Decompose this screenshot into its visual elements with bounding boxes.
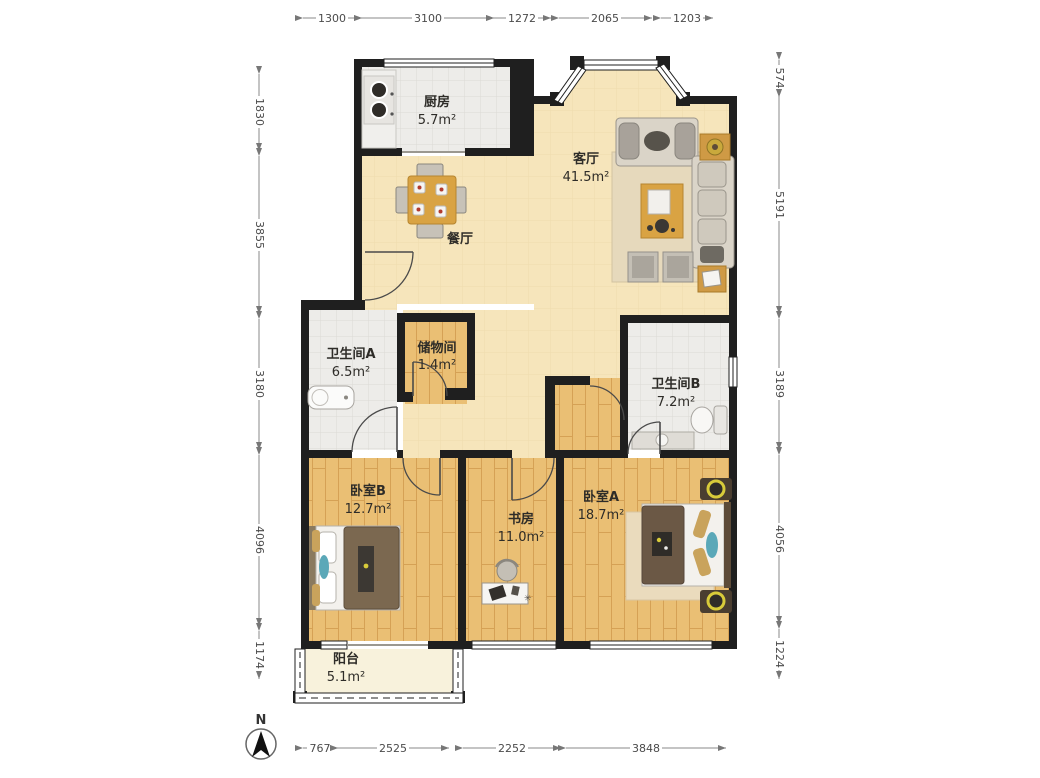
svg-text:574: 574 (773, 68, 786, 89)
desk-chair (497, 561, 517, 581)
svg-text:2065: 2065 (591, 12, 619, 25)
svg-text:4096: 4096 (253, 526, 266, 554)
bathroom-a-floor (309, 310, 397, 450)
compass: N (246, 713, 276, 759)
svg-text:餐厅: 餐厅 (446, 231, 473, 247)
lamp (708, 593, 724, 609)
stove-burner (371, 102, 387, 118)
svg-text:5191: 5191 (773, 191, 786, 219)
svg-text:卧室A: 卧室A (583, 489, 619, 505)
svg-text:书房: 书房 (508, 511, 534, 527)
svg-text:767: 767 (310, 742, 331, 755)
svg-text:1830: 1830 (253, 98, 266, 126)
dim-right-2: 3189 (773, 319, 786, 450)
bedroom-b-window (321, 641, 347, 649)
dim-top-2: 1272 (494, 12, 551, 25)
kitchen-window (384, 59, 494, 67)
dim-right-4: 1224 (773, 629, 786, 679)
svg-text:储物间: 储物间 (416, 340, 456, 356)
kitchen-counter (362, 70, 396, 148)
floor-plan: ✳ (0, 0, 1040, 778)
svg-text:1300: 1300 (318, 12, 346, 25)
svg-text:4056: 4056 (773, 525, 786, 553)
svg-text:3189: 3189 (773, 370, 786, 398)
ottoman-cushion (667, 256, 689, 278)
svg-text:1272: 1272 (508, 12, 536, 25)
dim-top-0: 1300 (303, 12, 362, 25)
floor-plan-canvas: ✳ (0, 0, 1040, 778)
dim-right-0: 574 (773, 60, 786, 97)
vestibule-floor (555, 378, 622, 452)
dim-bottom-3: 3848 (566, 742, 726, 755)
toilet (691, 406, 727, 434)
sink (656, 434, 668, 446)
bay-window-top (584, 60, 658, 70)
study-floor (466, 458, 556, 641)
svg-text:✳: ✳ (524, 594, 532, 604)
svg-text:1174: 1174 (253, 641, 266, 669)
dim-top-3: 2065 (559, 12, 652, 25)
study-window (472, 641, 556, 649)
dim-top-4: 1203 (661, 12, 713, 25)
living-room-set (612, 118, 734, 292)
sofa-right (692, 156, 734, 268)
svg-text:5.1m²: 5.1m² (327, 670, 366, 685)
svg-text:2252: 2252 (498, 742, 526, 755)
dim-left-3: 4096 (253, 455, 266, 626)
svg-text:阳台: 阳台 (333, 651, 359, 667)
dim-right-1: 5191 (773, 97, 786, 314)
svg-text:11.0m²: 11.0m² (498, 530, 545, 545)
lamp (708, 481, 724, 497)
dim-left-1: 3855 (253, 156, 266, 314)
bathroom-b-window (729, 357, 737, 387)
svg-text:7.2m²: 7.2m² (657, 395, 696, 410)
svg-text:1.4m²: 1.4m² (418, 358, 457, 373)
svg-text:客厅: 客厅 (573, 151, 599, 167)
ottoman-cushion (632, 256, 654, 278)
svg-text:卧室B: 卧室B (350, 483, 386, 499)
svg-text:1224: 1224 (773, 640, 786, 668)
svg-text:3180: 3180 (253, 370, 266, 398)
svg-text:3100: 3100 (414, 12, 442, 25)
dim-right-3: 4056 (773, 455, 786, 624)
stove-burner (371, 82, 387, 98)
svg-text:18.7m²: 18.7m² (578, 508, 625, 523)
svg-text:6.5m²: 6.5m² (332, 365, 371, 380)
svg-text:41.5m²: 41.5m² (563, 170, 610, 185)
svg-text:卫生间A: 卫生间A (326, 346, 375, 362)
svg-text:12.7m²: 12.7m² (345, 502, 392, 517)
svg-text:卫生间B: 卫生间B (652, 376, 701, 392)
dim-top-1: 3100 (362, 12, 494, 25)
dim-left-2: 3180 (253, 319, 266, 450)
dim-bottom-1: 2525 (338, 742, 449, 755)
side-table-plant (700, 134, 730, 160)
bed-bedroom-b (309, 526, 400, 610)
coffee-table (641, 184, 683, 238)
room-label-dining: 餐厅 (446, 231, 473, 247)
svg-text:厨房: 厨房 (424, 94, 450, 110)
svg-text:5.7m²: 5.7m² (418, 113, 457, 128)
svg-text:2525: 2525 (379, 742, 407, 755)
dim-bottom-2: 2252 (463, 742, 561, 755)
svg-text:1203: 1203 (673, 12, 701, 25)
bedroom-a-window (590, 641, 712, 649)
compass-north-label: N (256, 713, 267, 728)
svg-text:3855: 3855 (253, 221, 266, 249)
bathtub (308, 386, 354, 409)
sofa-top (616, 118, 698, 166)
side-table-book (698, 266, 726, 292)
svg-text:3848: 3848 (632, 742, 660, 755)
dim-left-0: 1830 (253, 74, 266, 151)
dim-bottom-0: 767 (303, 742, 338, 755)
